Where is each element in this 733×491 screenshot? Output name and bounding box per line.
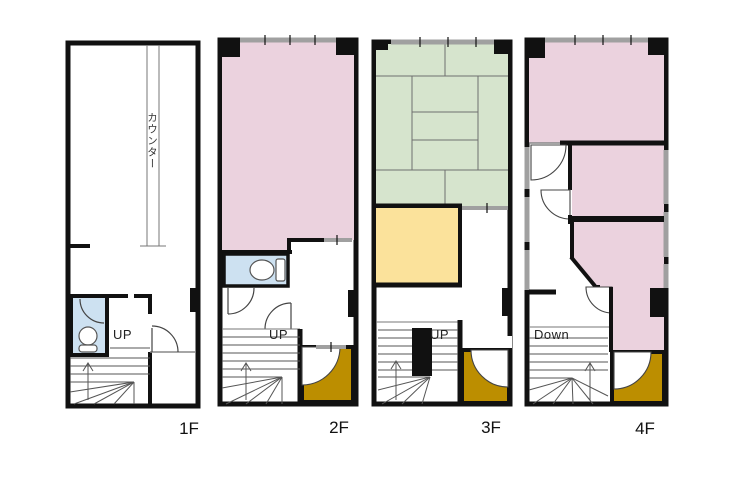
stairs-4f	[529, 338, 608, 404]
tatami-room-3f	[376, 44, 508, 206]
door-arc	[531, 145, 566, 180]
pillar	[494, 40, 510, 54]
floor-label-3f: 3F	[474, 418, 508, 438]
stair-direction-label-2f: UP	[269, 327, 288, 342]
floor-plan-3f	[372, 37, 512, 404]
up-arrow-icon	[241, 363, 251, 400]
door-arc	[152, 326, 178, 352]
floor-plan-canvas: カウンター UP UP UP Down 1F 2F 3F 4F	[0, 0, 733, 491]
pillar	[220, 40, 240, 57]
pillar	[374, 40, 388, 50]
floor-label-4f: 4F	[628, 419, 662, 439]
toilet-room-2f	[224, 254, 288, 286]
pillar	[648, 40, 666, 55]
pillar	[527, 40, 545, 58]
toilet-icon	[79, 327, 97, 352]
floor-plan-1f	[68, 43, 198, 406]
stair-direction-label-1f: UP	[113, 327, 132, 342]
wall-opening	[504, 336, 512, 348]
pillar	[336, 40, 356, 55]
room-middle-4f	[572, 145, 664, 217]
inner-room-3f	[376, 208, 460, 285]
floor-label-2f: 2F	[322, 418, 356, 438]
room-main-4f	[529, 42, 664, 143]
stair-void	[412, 328, 432, 376]
stairs-2f	[222, 337, 300, 404]
floor-plan-4f	[527, 35, 666, 404]
counter-label: カウンター	[145, 112, 160, 170]
door-arc	[228, 288, 254, 314]
room-main-2f	[222, 42, 354, 251]
floor-label-1f: 1F	[172, 419, 206, 439]
room-lower-4f	[572, 222, 664, 350]
door-arc	[541, 190, 570, 219]
pillar	[502, 288, 511, 316]
toilet-icon	[250, 259, 285, 281]
floorplan-drawing	[0, 0, 733, 491]
up-arrow-icon	[585, 363, 595, 400]
door-arc	[586, 287, 612, 313]
pillar	[650, 288, 666, 317]
door-arc	[265, 303, 291, 329]
stair-direction-label-4f: Down	[534, 327, 569, 342]
stair-direction-label-3f: UP	[430, 327, 449, 342]
toilet-room-1f	[71, 296, 107, 355]
pillar	[190, 288, 198, 312]
floor-plan-2f	[218, 35, 356, 404]
pillar	[348, 290, 356, 317]
